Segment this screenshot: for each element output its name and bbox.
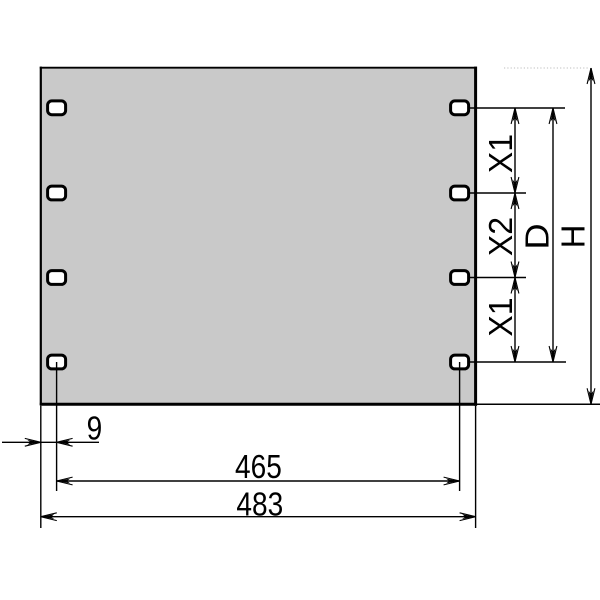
svg-text:X2: X2 [483, 217, 520, 256]
svg-text:465: 465 [235, 449, 282, 486]
svg-text:X1: X1 [483, 134, 520, 173]
svg-text:483: 483 [236, 486, 283, 523]
svg-text:X1: X1 [483, 297, 520, 336]
svg-text:H: H [555, 225, 592, 249]
svg-text:9: 9 [87, 410, 103, 447]
svg-text:D: D [520, 223, 556, 249]
